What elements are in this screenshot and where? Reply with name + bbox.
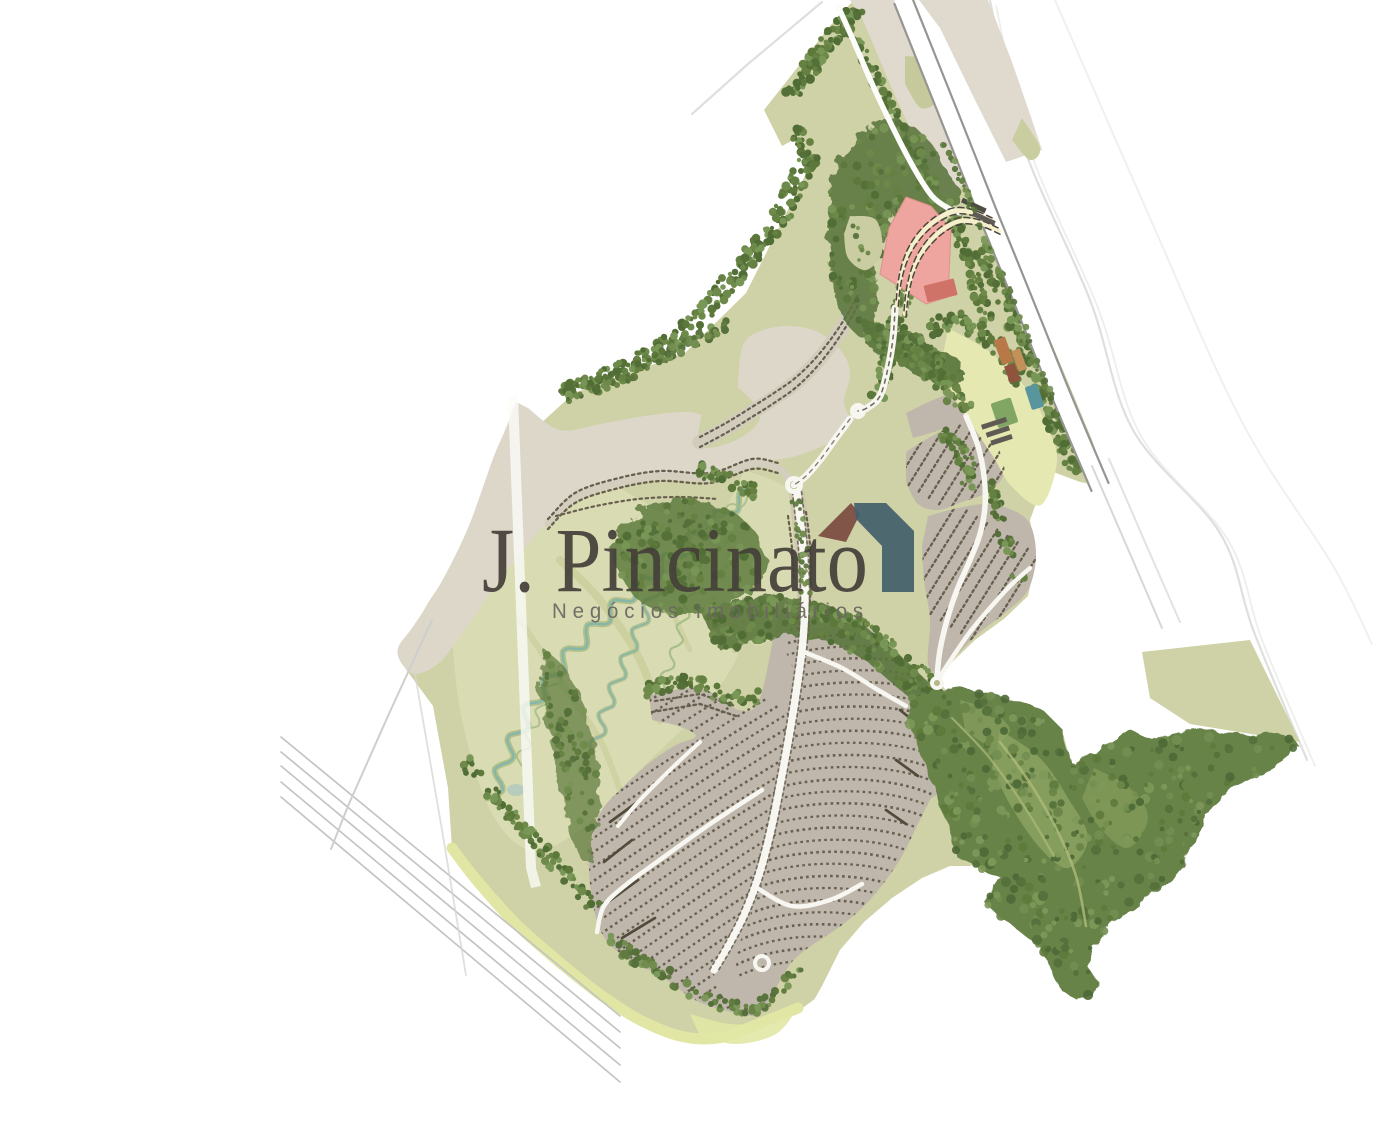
svg-text:J. Pincinato: J. Pincinato — [482, 509, 868, 611]
svg-text:Negócios Imobiliários: Negócios Imobiliários — [552, 600, 869, 623]
